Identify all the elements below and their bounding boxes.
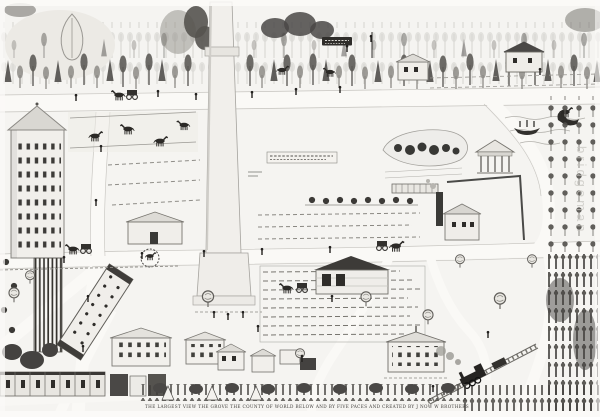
bottom-right-forest: [460, 385, 600, 411]
artwork-image: THE LARGEST VIEW THE GROVE THE COUNTY OF…: [0, 0, 600, 417]
chimney: [436, 192, 443, 226]
forest-canopy: [546, 278, 574, 322]
watermark-text: bridgeman: [574, 146, 589, 234]
caption: THE LARGEST VIEW THE GROVE THE COUNTY OF…: [145, 404, 469, 410]
horse-pasture: [68, 112, 198, 152]
bottom-tree-band: [140, 383, 470, 401]
monument-plinth: [197, 253, 251, 296]
artwork-svg: THE LARGEST VIEW THE GROVE THE COUNTY OF…: [0, 0, 600, 417]
hatched-annex: [34, 258, 62, 352]
forest-canopy: [573, 310, 597, 370]
